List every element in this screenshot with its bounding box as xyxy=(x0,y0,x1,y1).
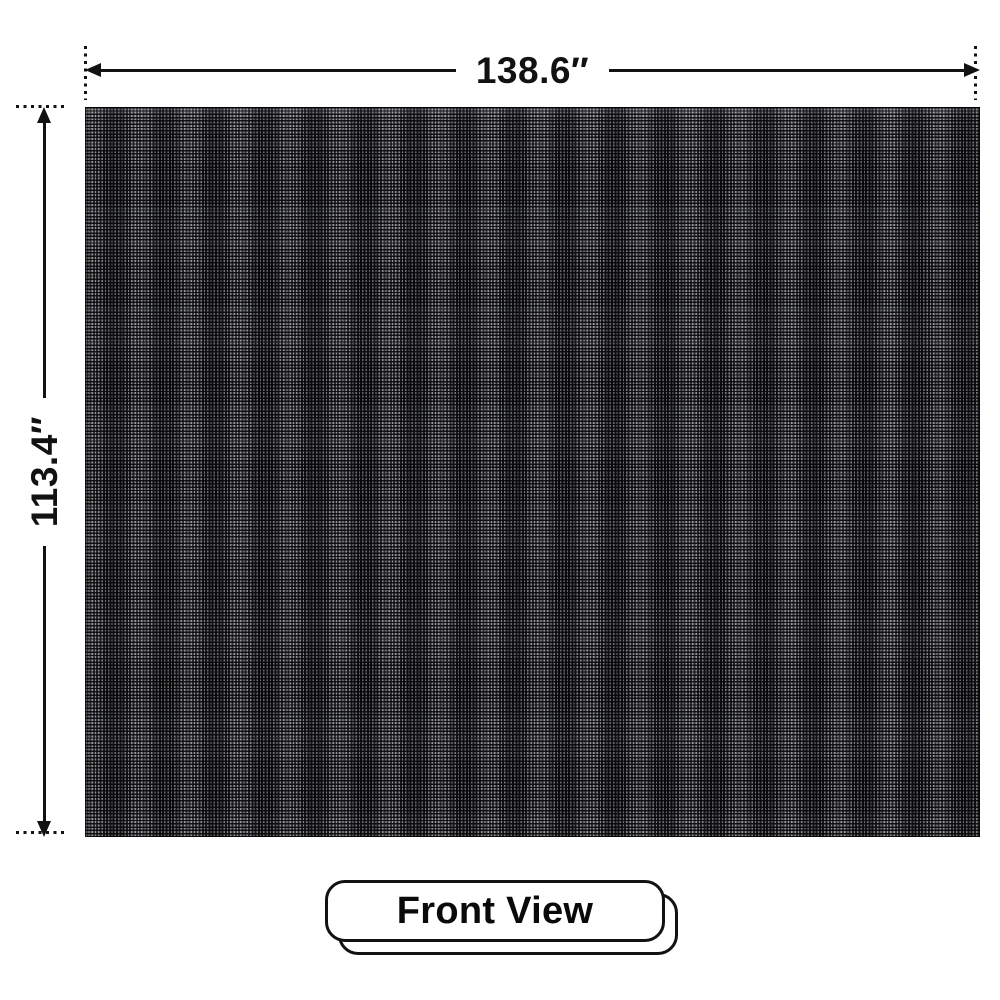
height-dimension-label: 113.4″ xyxy=(26,398,63,545)
dimension-line-segment xyxy=(43,546,46,821)
width-dimension: 138.6″ xyxy=(85,50,980,90)
arrowhead-left-icon xyxy=(85,63,101,77)
dimension-line-segment xyxy=(43,123,46,398)
front-view-label: Front View xyxy=(397,890,594,933)
front-view-button[interactable]: Front View xyxy=(325,880,665,942)
led-panel-image xyxy=(85,107,980,837)
arrowhead-up-icon xyxy=(37,107,51,123)
arrowhead-right-icon xyxy=(964,63,980,77)
dimension-line-segment xyxy=(101,69,456,72)
dimension-line-segment xyxy=(609,69,964,72)
height-dimension: 113.4″ xyxy=(27,107,61,837)
view-selector: Front View xyxy=(325,880,665,942)
arrowhead-down-icon xyxy=(37,821,51,837)
width-dimension-label: 138.6″ xyxy=(456,52,609,89)
product-dimension-diagram: 138.6″ 113.4″ Front View xyxy=(0,0,1000,1000)
